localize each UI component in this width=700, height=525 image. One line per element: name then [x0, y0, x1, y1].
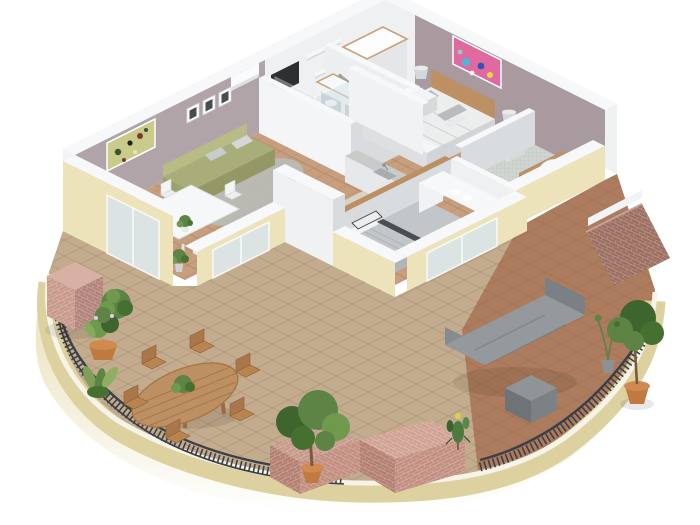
- floorplan-render: [0, 0, 700, 525]
- isometric-scene: [0, 0, 700, 525]
